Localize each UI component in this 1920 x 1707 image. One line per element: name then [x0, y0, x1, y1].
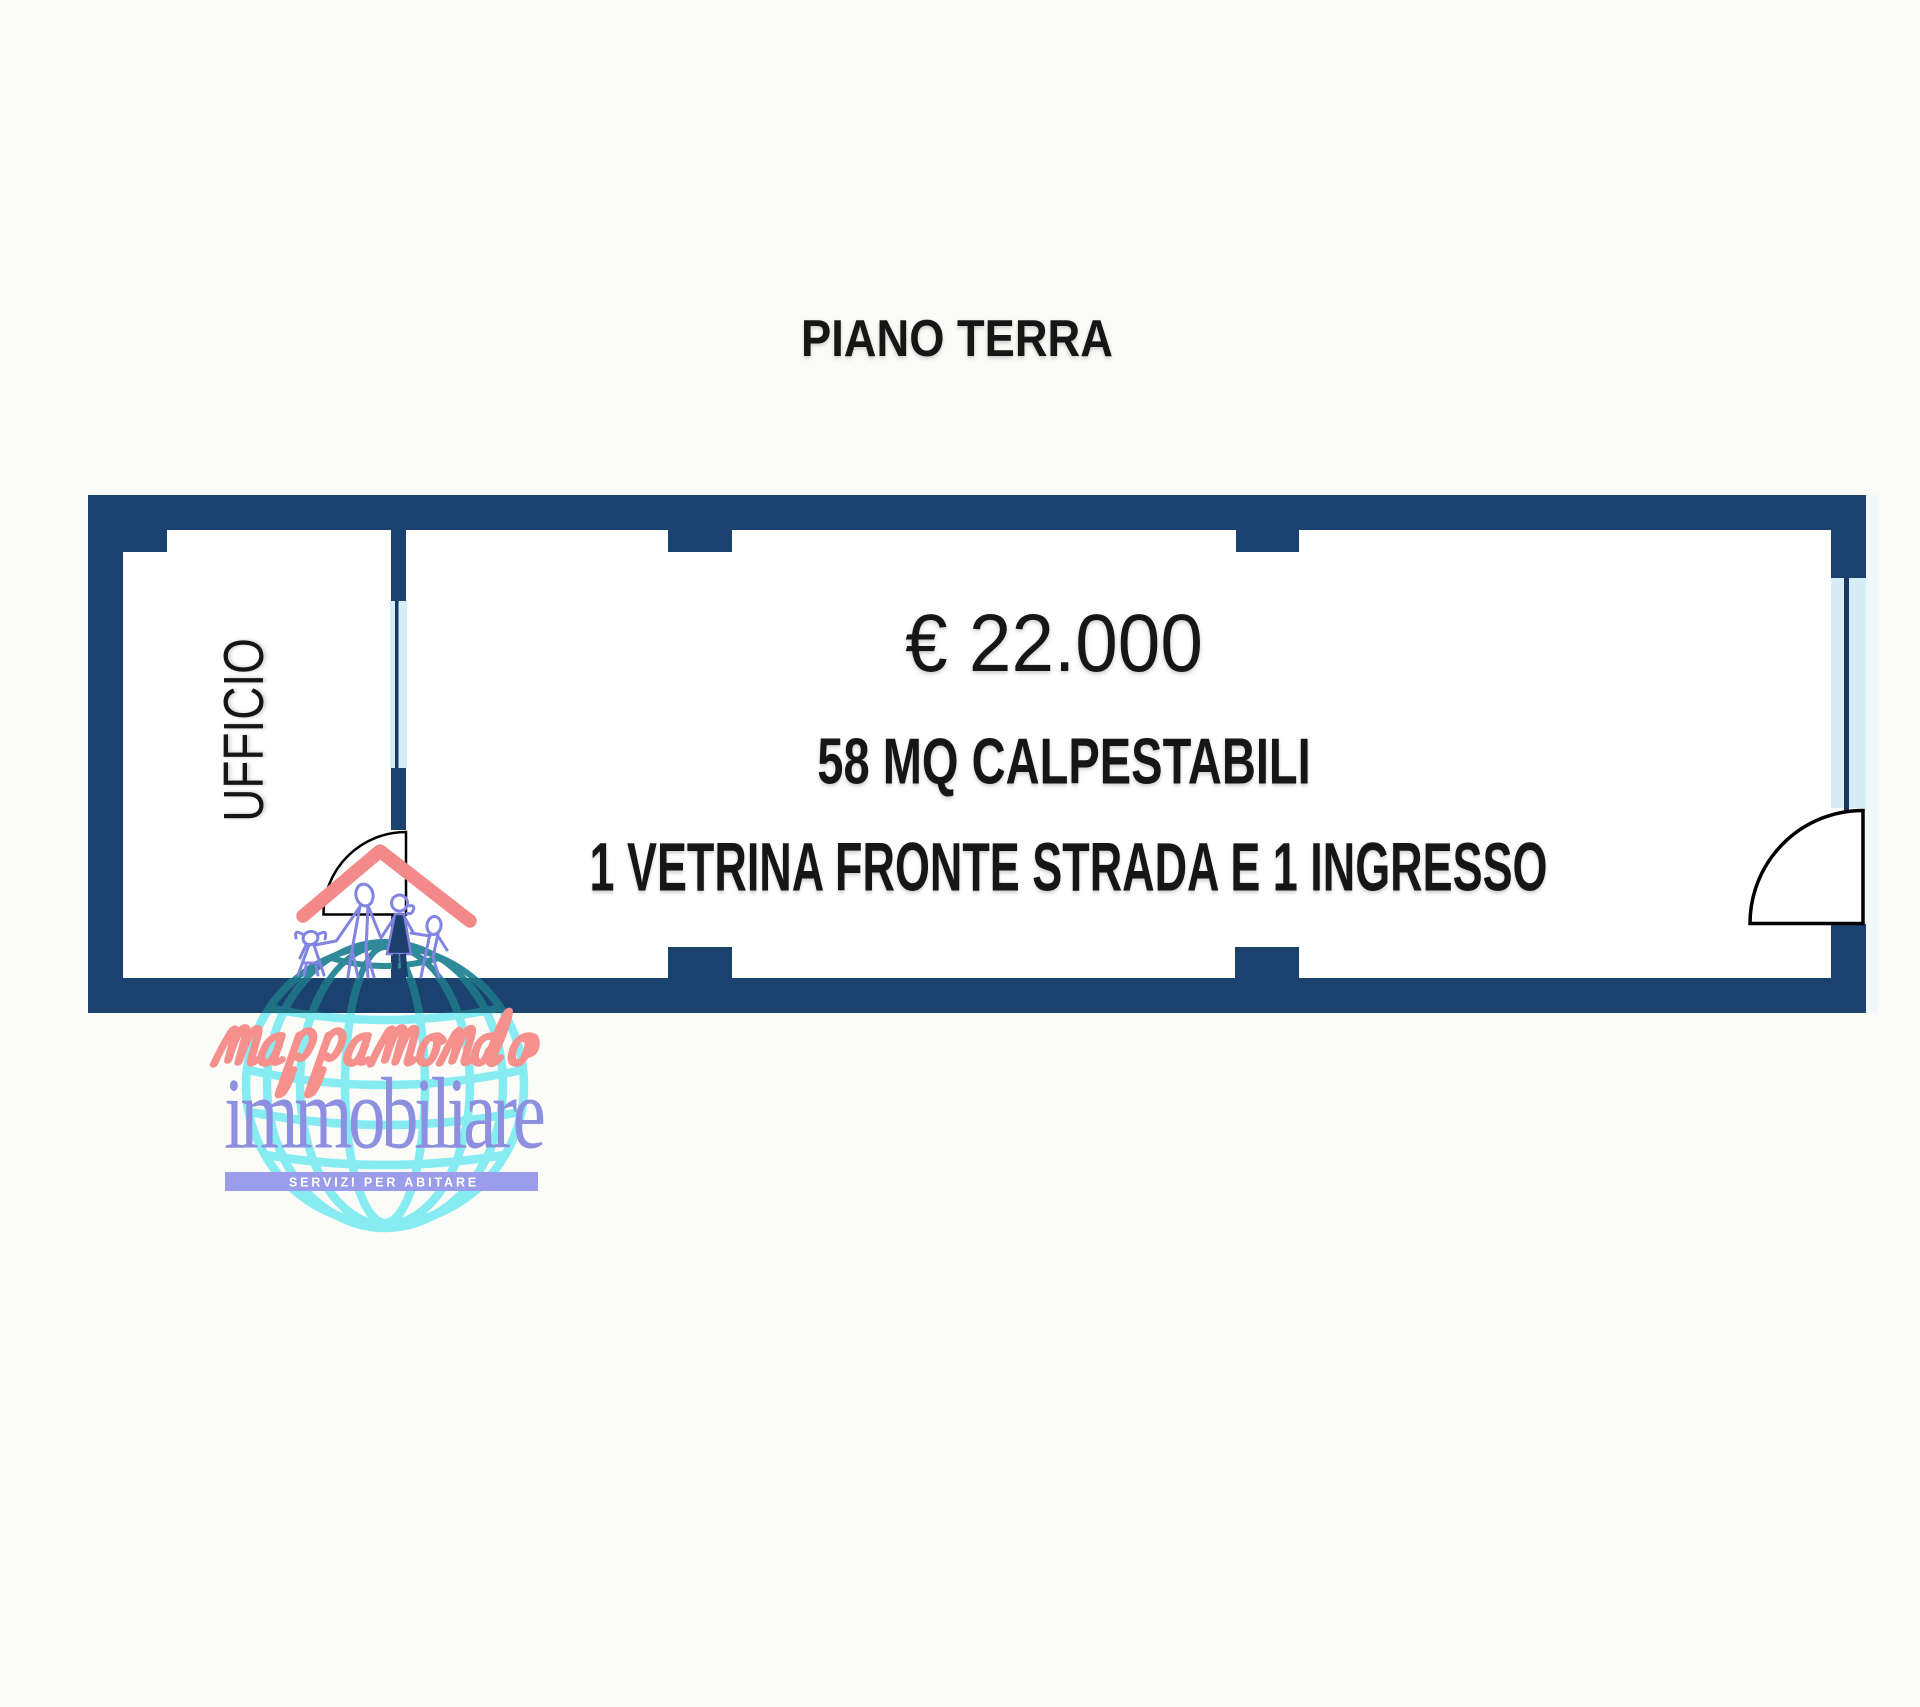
svg-text:1 VETRINA FRONTE STRADA E 1 IN: 1 VETRINA FRONTE STRADA E 1 INGRESSO: [589, 830, 1547, 906]
svg-text:SERVIZI PER ABITARE: SERVIZI PER ABITARE: [289, 1176, 479, 1190]
svg-text:UFFICIO: UFFICIO: [211, 638, 275, 822]
svg-text:58 MQ CALPESTABILI: 58 MQ CALPESTABILI: [817, 725, 1310, 798]
svg-text:€ 22.000: € 22.000: [905, 597, 1203, 689]
svg-text:PIANO TERRA: PIANO TERRA: [801, 310, 1113, 368]
svg-text:immobiliare: immobiliare: [224, 1057, 544, 1170]
